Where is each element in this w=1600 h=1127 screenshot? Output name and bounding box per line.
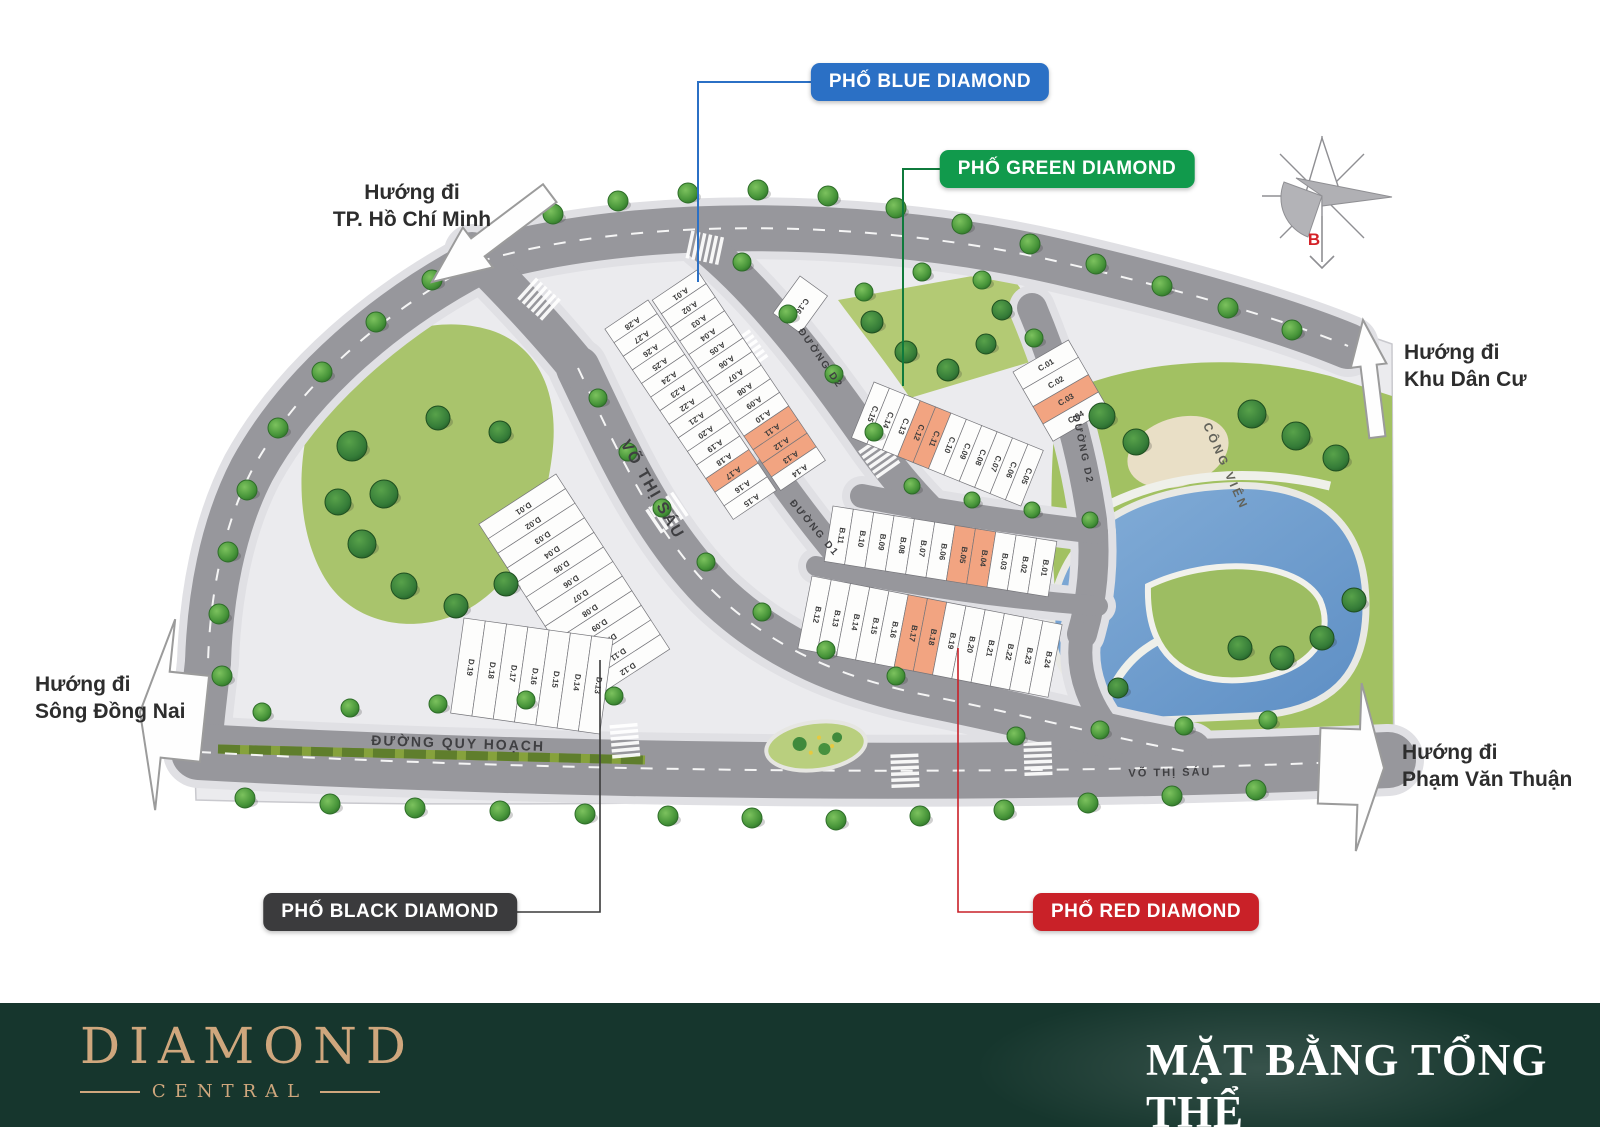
lake-island	[1148, 566, 1325, 680]
tree	[1246, 780, 1266, 800]
tree	[370, 480, 398, 508]
tree	[964, 492, 980, 508]
tree	[994, 800, 1014, 820]
tree	[1024, 502, 1040, 518]
tree	[494, 572, 518, 596]
tree	[826, 810, 846, 830]
direction-hcm-line1: Hướng đi	[333, 180, 491, 207]
direction-kdc-line1: Hướng đi	[1404, 340, 1527, 367]
tree	[1270, 646, 1294, 670]
direction-hcm: Hướng đi TP. Hồ Chí Minh	[333, 180, 491, 234]
tree	[855, 283, 873, 301]
tree	[209, 604, 229, 624]
masterplan-page: A.28A.27A.26A.25A.24A.23A.22A.21A.20A.19…	[0, 0, 1600, 1127]
tree	[1323, 445, 1349, 471]
tree	[1007, 727, 1025, 745]
tree	[1152, 276, 1172, 296]
tree	[1091, 721, 1109, 739]
tree	[212, 666, 232, 686]
tree	[779, 305, 797, 323]
tree	[312, 362, 332, 382]
tree	[658, 806, 678, 826]
tree	[1086, 254, 1106, 274]
direction-pham-van-thuan: Hướng đi Phạm Văn Thuận	[1402, 740, 1572, 794]
tree	[320, 794, 340, 814]
direction-sdn-line1: Hướng đi	[35, 672, 186, 699]
brand-line-right	[320, 1091, 380, 1093]
brand-subtitle-text: CENTRAL	[152, 1081, 308, 1102]
tree	[218, 542, 238, 562]
tree	[861, 311, 883, 333]
tree	[733, 253, 751, 271]
direction-pvt-line1: Hướng đi	[1402, 740, 1572, 767]
tree	[337, 431, 367, 461]
tree	[748, 180, 768, 200]
tree	[341, 699, 359, 717]
tree	[697, 553, 715, 571]
tree	[575, 804, 595, 824]
badge-pho-blue-diamond: PHỐ BLUE DIAMOND	[811, 63, 1049, 101]
direction-khu-dan-cu: Hướng đi Khu Dân Cư	[1404, 340, 1527, 394]
tree	[753, 603, 771, 621]
tree	[678, 183, 698, 203]
tree	[742, 808, 762, 828]
block-d-bottom-row: D.19D.18D.17D.16D.15D.14D.13	[451, 618, 613, 734]
badge-pho-black-diamond: PHỐ BLACK DIAMOND	[263, 893, 517, 931]
direction-song-dong-nai: Hướng đi Sông Đồng Nai	[35, 672, 186, 726]
compass-north-letter: B	[1308, 230, 1320, 249]
direction-sdn-line2: Sông Đồng Nai	[35, 699, 186, 726]
tree	[429, 695, 447, 713]
tree	[887, 667, 905, 685]
tree	[366, 312, 386, 332]
tree	[895, 341, 917, 363]
tree	[1082, 512, 1098, 528]
direction-pvt-line2: Phạm Văn Thuận	[1402, 767, 1572, 794]
tree	[937, 359, 959, 381]
site-plan-map: A.28A.27A.26A.25A.24A.23A.22A.21A.20A.19…	[0, 0, 1600, 1010]
tree	[1282, 422, 1310, 450]
tree	[976, 334, 996, 354]
tree	[817, 641, 835, 659]
tree	[1218, 298, 1238, 318]
tree	[253, 703, 271, 721]
tree	[391, 573, 417, 599]
tree	[517, 691, 535, 709]
tree	[1342, 588, 1366, 612]
tree	[910, 806, 930, 826]
tree	[1078, 793, 1098, 813]
tree	[490, 801, 510, 821]
tree	[605, 687, 623, 705]
tree	[818, 186, 838, 206]
tree	[426, 406, 450, 430]
tree	[1123, 429, 1149, 455]
tree	[237, 480, 257, 500]
badge-pho-green-diamond: PHỐ GREEN DIAMOND	[940, 150, 1195, 188]
tree	[589, 389, 607, 407]
tree	[1020, 234, 1040, 254]
brand-subtitle: CENTRAL	[80, 1081, 380, 1102]
tree	[348, 530, 376, 558]
tree	[1228, 636, 1252, 660]
tree	[1162, 786, 1182, 806]
brand-name: DIAMOND	[80, 1017, 380, 1075]
tree	[1259, 711, 1277, 729]
direction-kdc-line2: Khu Dân Cư	[1404, 367, 1527, 394]
tree	[1238, 400, 1266, 428]
tree	[1175, 717, 1193, 735]
direction-hcm-line2: TP. Hồ Chí Minh	[333, 207, 491, 234]
tree	[952, 214, 972, 234]
tree	[973, 271, 991, 289]
road-label-vo-thi-sau-east: VÕ THỊ SÁU	[1128, 765, 1211, 779]
tree	[913, 263, 931, 281]
tree	[325, 489, 351, 515]
brand-logo: DIAMOND CENTRAL	[80, 1017, 380, 1102]
plan-title: MẶT BẰNG TỔNG THỂ	[1146, 1034, 1600, 1127]
tree	[1025, 329, 1043, 347]
tree	[992, 300, 1012, 320]
tree	[1089, 403, 1115, 429]
tree	[608, 191, 628, 211]
tree	[489, 421, 511, 443]
tree	[235, 788, 255, 808]
tree	[904, 478, 920, 494]
tree	[405, 798, 425, 818]
tree	[268, 418, 288, 438]
tree	[1282, 320, 1302, 340]
tree	[444, 594, 468, 618]
tree	[1108, 678, 1128, 698]
tree	[1310, 626, 1334, 650]
compass-rose: B	[1262, 136, 1392, 268]
tree	[865, 423, 883, 441]
badge-pho-red-diamond: PHỐ RED DIAMOND	[1033, 893, 1259, 931]
brand-line-left	[80, 1091, 140, 1093]
